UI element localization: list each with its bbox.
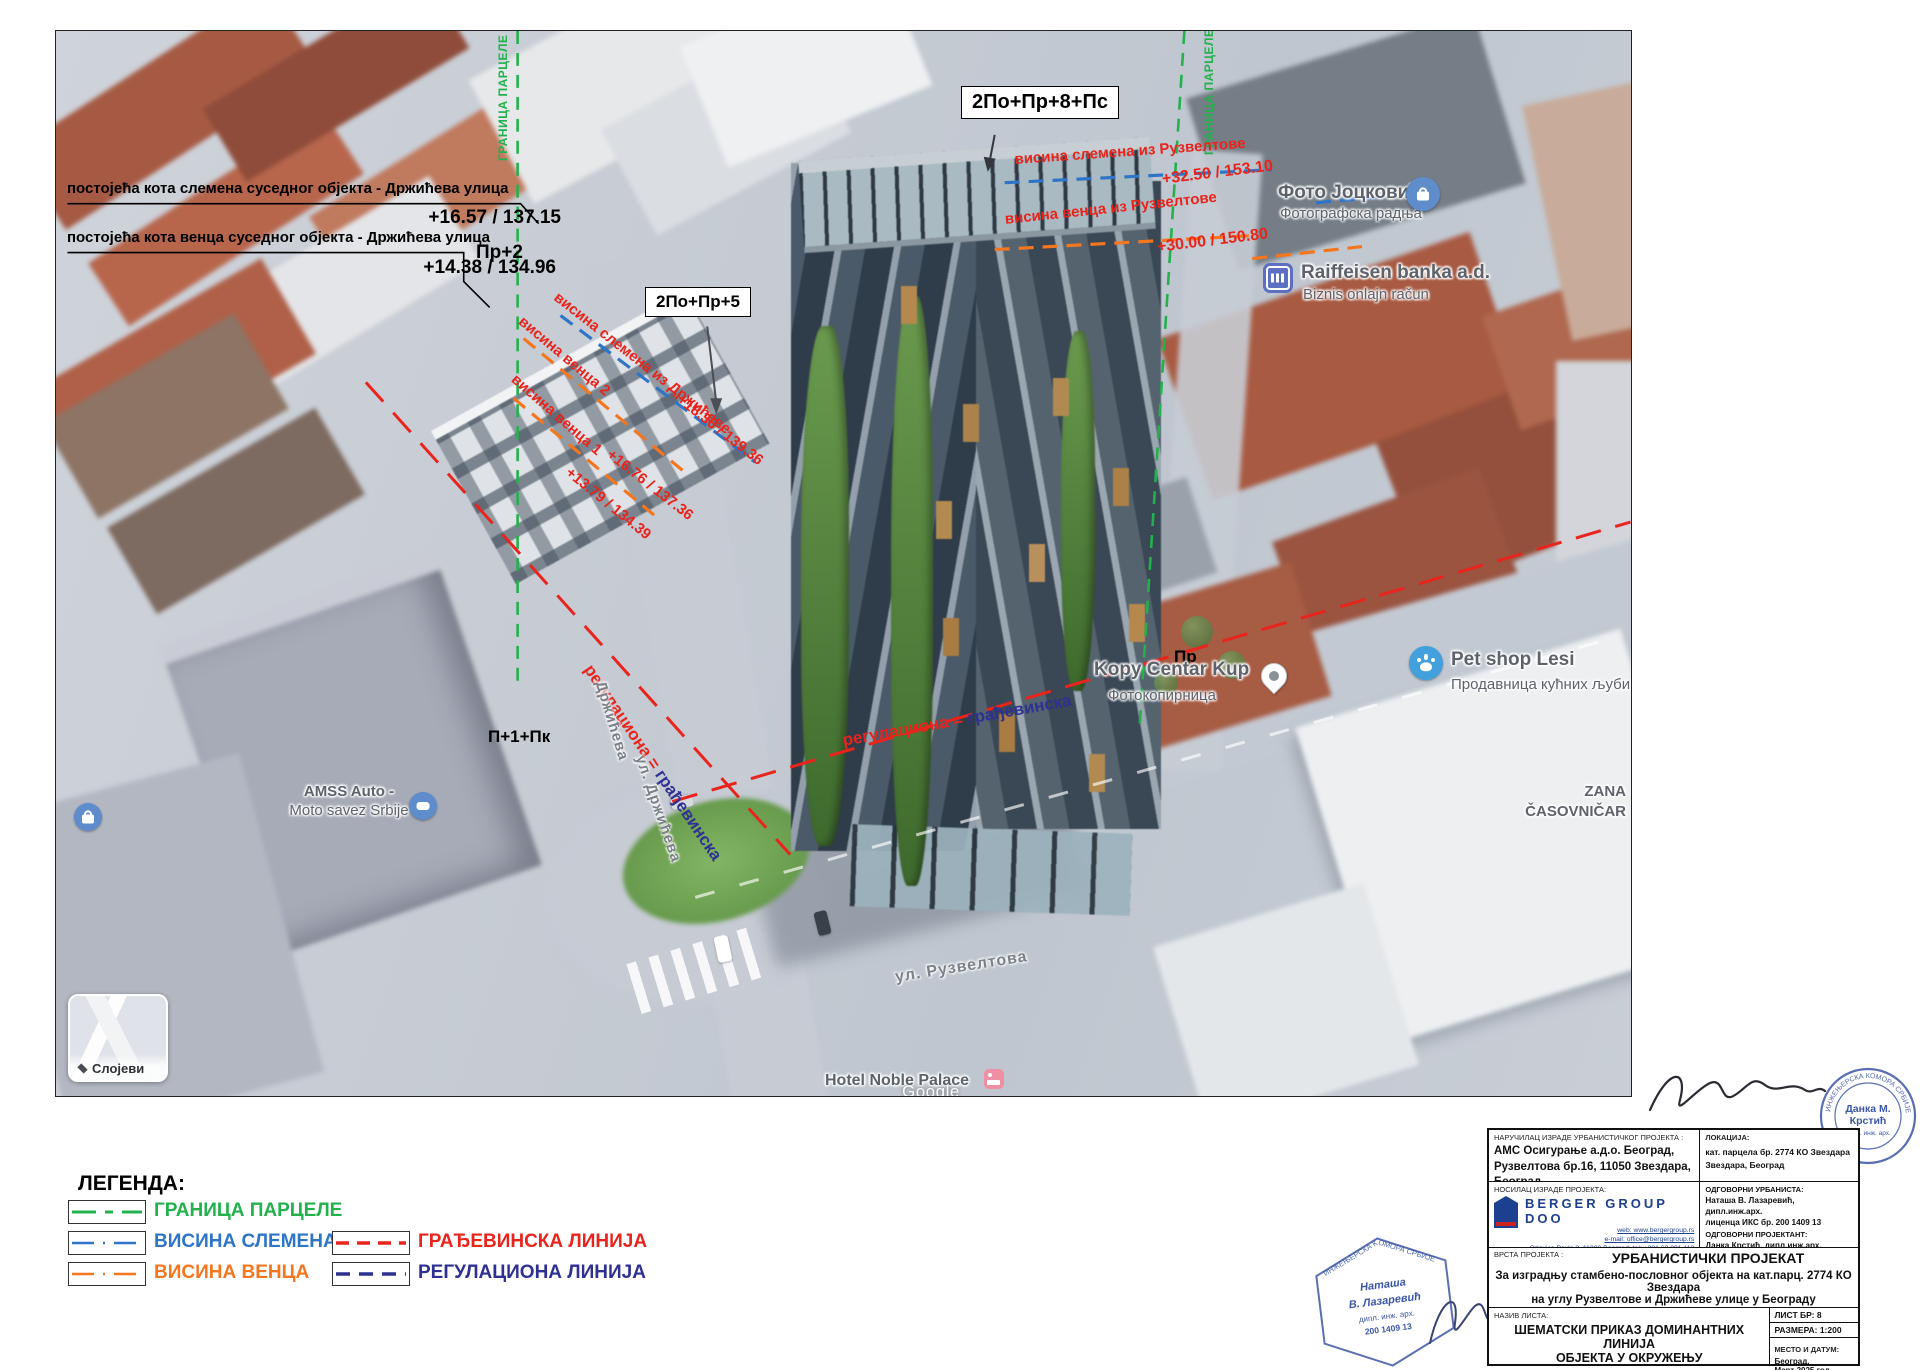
poi-kopy-sub: Фотокопирница <box>1108 687 1216 704</box>
poi-petshop-sub: Продавница кућних љуби <box>1451 676 1630 693</box>
poi-foto-sub: Фотографска радња <box>1280 205 1422 222</box>
legend-label-regulation-line: РЕГУЛАЦИОНА ЛИНИЈА <box>418 1262 646 1284</box>
tb-place-line2: Март 2025.год. <box>1774 1366 1854 1370</box>
tb-client-cell: НАРУЧИЛАЦ ИЗРАДЕ УРБАНИСТИЧКОГ ПРОЈЕКТА … <box>1489 1130 1699 1181</box>
layers-icon <box>77 1063 87 1073</box>
tb-designer-name: Данка Крстић, дипл.инж.арх. <box>1705 1240 1853 1247</box>
eaves1-height-line-drziceva <box>514 398 656 516</box>
legend-label-ridge: ВИСИНА СЛЕМЕНА <box>154 1231 337 1253</box>
legend-swatch-ridge <box>68 1231 146 1255</box>
tb-urbanist-label: ОДГОВОРНИ УРБАНИСТА: <box>1705 1185 1853 1195</box>
poi-amss-sub: Moto savez Srbije <box>274 802 424 819</box>
tb-sheet-label: НАЗИВ ЛИСТА: <box>1494 1311 1764 1320</box>
lock-pin-icon <box>1406 177 1440 211</box>
layers-button[interactable]: Слојеви <box>68 994 168 1082</box>
signature-ink <box>1640 1055 1830 1130</box>
tb-responsible-cell: ОДГОВОРНИ УРБАНИСТА: Наташа В. Лазаревић… <box>1699 1182 1858 1247</box>
berger-email: e-mail: office@bergergroup.rs <box>1525 1235 1694 1244</box>
tb-type-desc1: За изградњу стамбено-пословног објекта н… <box>1494 1270 1853 1294</box>
layers-label: Слојеви <box>92 1061 144 1076</box>
poi-zana-sub: ČASOVNIČAR <box>1504 803 1626 820</box>
legend-swatch-building-line <box>332 1231 410 1255</box>
tb-sheet-no: ЛИСТ БР: 8 <box>1770 1308 1858 1323</box>
floors-tower-box: 2По+Пр+8+Пс <box>961 86 1119 119</box>
poi-foto-name: Фото Јоцковић <box>1278 182 1421 204</box>
floors-tower-arrow <box>990 135 995 161</box>
existing-ridge-value: +16.57 / 137.15 <box>261 207 561 229</box>
existing-ridge-note: постојећа кота слемена суседног објекта … <box>67 180 508 197</box>
tb-location-label: ЛОКАЦИЈА: <box>1705 1133 1853 1142</box>
tb-author-cell: НОСИЛАЦ ИЗРАДЕ ПРОЈЕКТА: BERGER GROUP DO… <box>1489 1182 1699 1247</box>
tb-type-label: ВРСТА ПРОЈЕКТА : <box>1494 1250 1563 1259</box>
tb-type-desc2: на углу Рузвелтове и Држићеве улице у Бе… <box>1494 1294 1853 1306</box>
poi-amss-name: AMSS Auto - <box>284 783 414 800</box>
legend-swatch-eaves <box>68 1262 146 1286</box>
tb-sheet-cell: НАЗИВ ЛИСТА: ШЕМАТСКИ ПРИКАЗ ДОМИНАНТНИХ… <box>1489 1308 1769 1364</box>
legend-label-eaves: ВИСИНА ВЕНЦА <box>154 1262 309 1284</box>
parcel-boundary-line-right <box>1139 31 1184 730</box>
tb-client-label: НАРУЧИЛАЦ ИЗРАДЕ УРБАНИСТИЧКОГ ПРОЈЕКТА … <box>1494 1133 1694 1142</box>
floors-tower-arrowhead <box>984 157 996 172</box>
eaves-height-line-ruzveltova-2 <box>1252 247 1362 259</box>
paw-pin-icon <box>1409 646 1443 680</box>
tb-urbanist-name: Наташа В. Лазаревић, дипл.инж.арх. <box>1705 1195 1853 1217</box>
round-stamp-name2: Крстић <box>1850 1115 1887 1127</box>
tb-client-line1: АМС Осигурање а.д.о. Београд, <box>1494 1144 1694 1160</box>
tb-designer-label: ОДГОВОРНИ ПРОЈЕКТАНТ: <box>1705 1230 1853 1240</box>
tb-client-line2: Рузвелтова бр.16, 11050 Звездара, Београ… <box>1494 1160 1694 1181</box>
legend-swatch-parcel <box>68 1200 146 1224</box>
tb-location-line1: кат. парцела бр. 2774 КО Звездара <box>1705 1146 1853 1159</box>
lock-pin-icon <box>74 803 102 831</box>
tb-scale: РАЗМЕРА: 1:200 <box>1770 1323 1858 1338</box>
tb-author-label: НОСИЛАЦ ИЗРАДЕ ПРОЈЕКТА: <box>1494 1185 1694 1194</box>
legend-title: ЛЕГЕНДА: <box>78 1172 185 1196</box>
tb-place-label: МЕСТО И ДАТУМ: <box>1774 1345 1839 1354</box>
berger-logo-text: BERGER GROUP DOO <box>1525 1196 1694 1226</box>
legend-label-parcel: ГРАНИЦА ПАРЦЕЛЕ <box>154 1200 342 1222</box>
floors-left-arrow <box>707 326 716 402</box>
legend-label-building-line: ГРАЂЕВИНСКА ЛИНИЈА <box>418 1231 647 1253</box>
tb-urbanist-lic: лиценца ИКС бр. 200 1409 13 <box>1705 1217 1853 1228</box>
google-watermark: Google <box>902 1082 960 1097</box>
tb-place-line1: Београд, <box>1774 1357 1854 1366</box>
tb-type-cell: ВРСТА ПРОЈЕКТА : УРБАНИСТИЧКИ ПРОЈЕКАТ З… <box>1489 1248 1858 1308</box>
layers-strip: Слојеви <box>70 1054 166 1080</box>
hex-stamp-number: 200 1409 13 <box>1364 1321 1412 1337</box>
berger-web: web: www.bergergroup.rs <box>1525 1226 1694 1235</box>
poi-raiffeisen-sub: Biznis onlajn račun <box>1303 286 1429 303</box>
bank-pin-icon <box>1263 263 1293 293</box>
project-sheet: постојећа кота слемена суседног објекта … <box>0 0 1920 1370</box>
poi-petshop-name: Pet shop Lesi <box>1451 649 1575 671</box>
tb-location-cell: ЛОКАЦИЈА: кат. парцела бр. 2774 КО Звезд… <box>1699 1130 1858 1181</box>
berger-address: Orlovica Pavla 2, 11000 Beograd; tel: +3… <box>1525 1244 1694 1247</box>
hotel-pin-icon <box>984 1069 1004 1089</box>
existing-eaves-note: постојећа кота венца суседног објекта - … <box>67 229 490 246</box>
poi-kopy-name: Kopy Centar Kup <box>1094 659 1249 681</box>
poi-raiffeisen-name: Raiffeisen banka a.d. <box>1301 262 1490 284</box>
title-block: НАРУЧИЛАЦ ИЗРАДЕ УРБАНИСТИЧКОГ ПРОЈЕКТА … <box>1487 1128 1860 1366</box>
aerial-map: постојећа кота слемена суседног објекта … <box>55 30 1632 1097</box>
legend-swatch-regulation-line <box>332 1262 410 1286</box>
amss-pin-icon <box>409 792 437 820</box>
tb-sheet-title2: ОБЈЕКТА У ОКРУЖЕЊУ <box>1494 1351 1764 1364</box>
hex-stamp-name1: Наташа <box>1359 1276 1406 1293</box>
floors-neighbor-label: Пр+2 <box>476 242 523 264</box>
floors-corner-label: П+1+Пк <box>488 727 550 747</box>
tb-sheet-title1: ШЕМАТСКИ ПРИКАЗ ДОМИНАНТНИХ ЛИНИЈА <box>1494 1323 1764 1351</box>
poi-zana-name: ZANA <box>1514 783 1626 800</box>
round-stamp-name1: Данка М. <box>1845 1103 1890 1115</box>
tb-meta-cell: ЛИСТ БР: 8 РАЗМЕРА: 1:200 МЕСТО И ДАТУМ:… <box>1769 1308 1858 1364</box>
parcel-boundary-label-left: ГРАНИЦА ПАРЦЕЛЕ <box>496 35 510 161</box>
berger-logo-icon <box>1494 1196 1518 1228</box>
tb-location-line2: Звездара, Београд <box>1705 1159 1853 1172</box>
floors-left-building-box: 2По+Пр+5 <box>645 287 751 317</box>
